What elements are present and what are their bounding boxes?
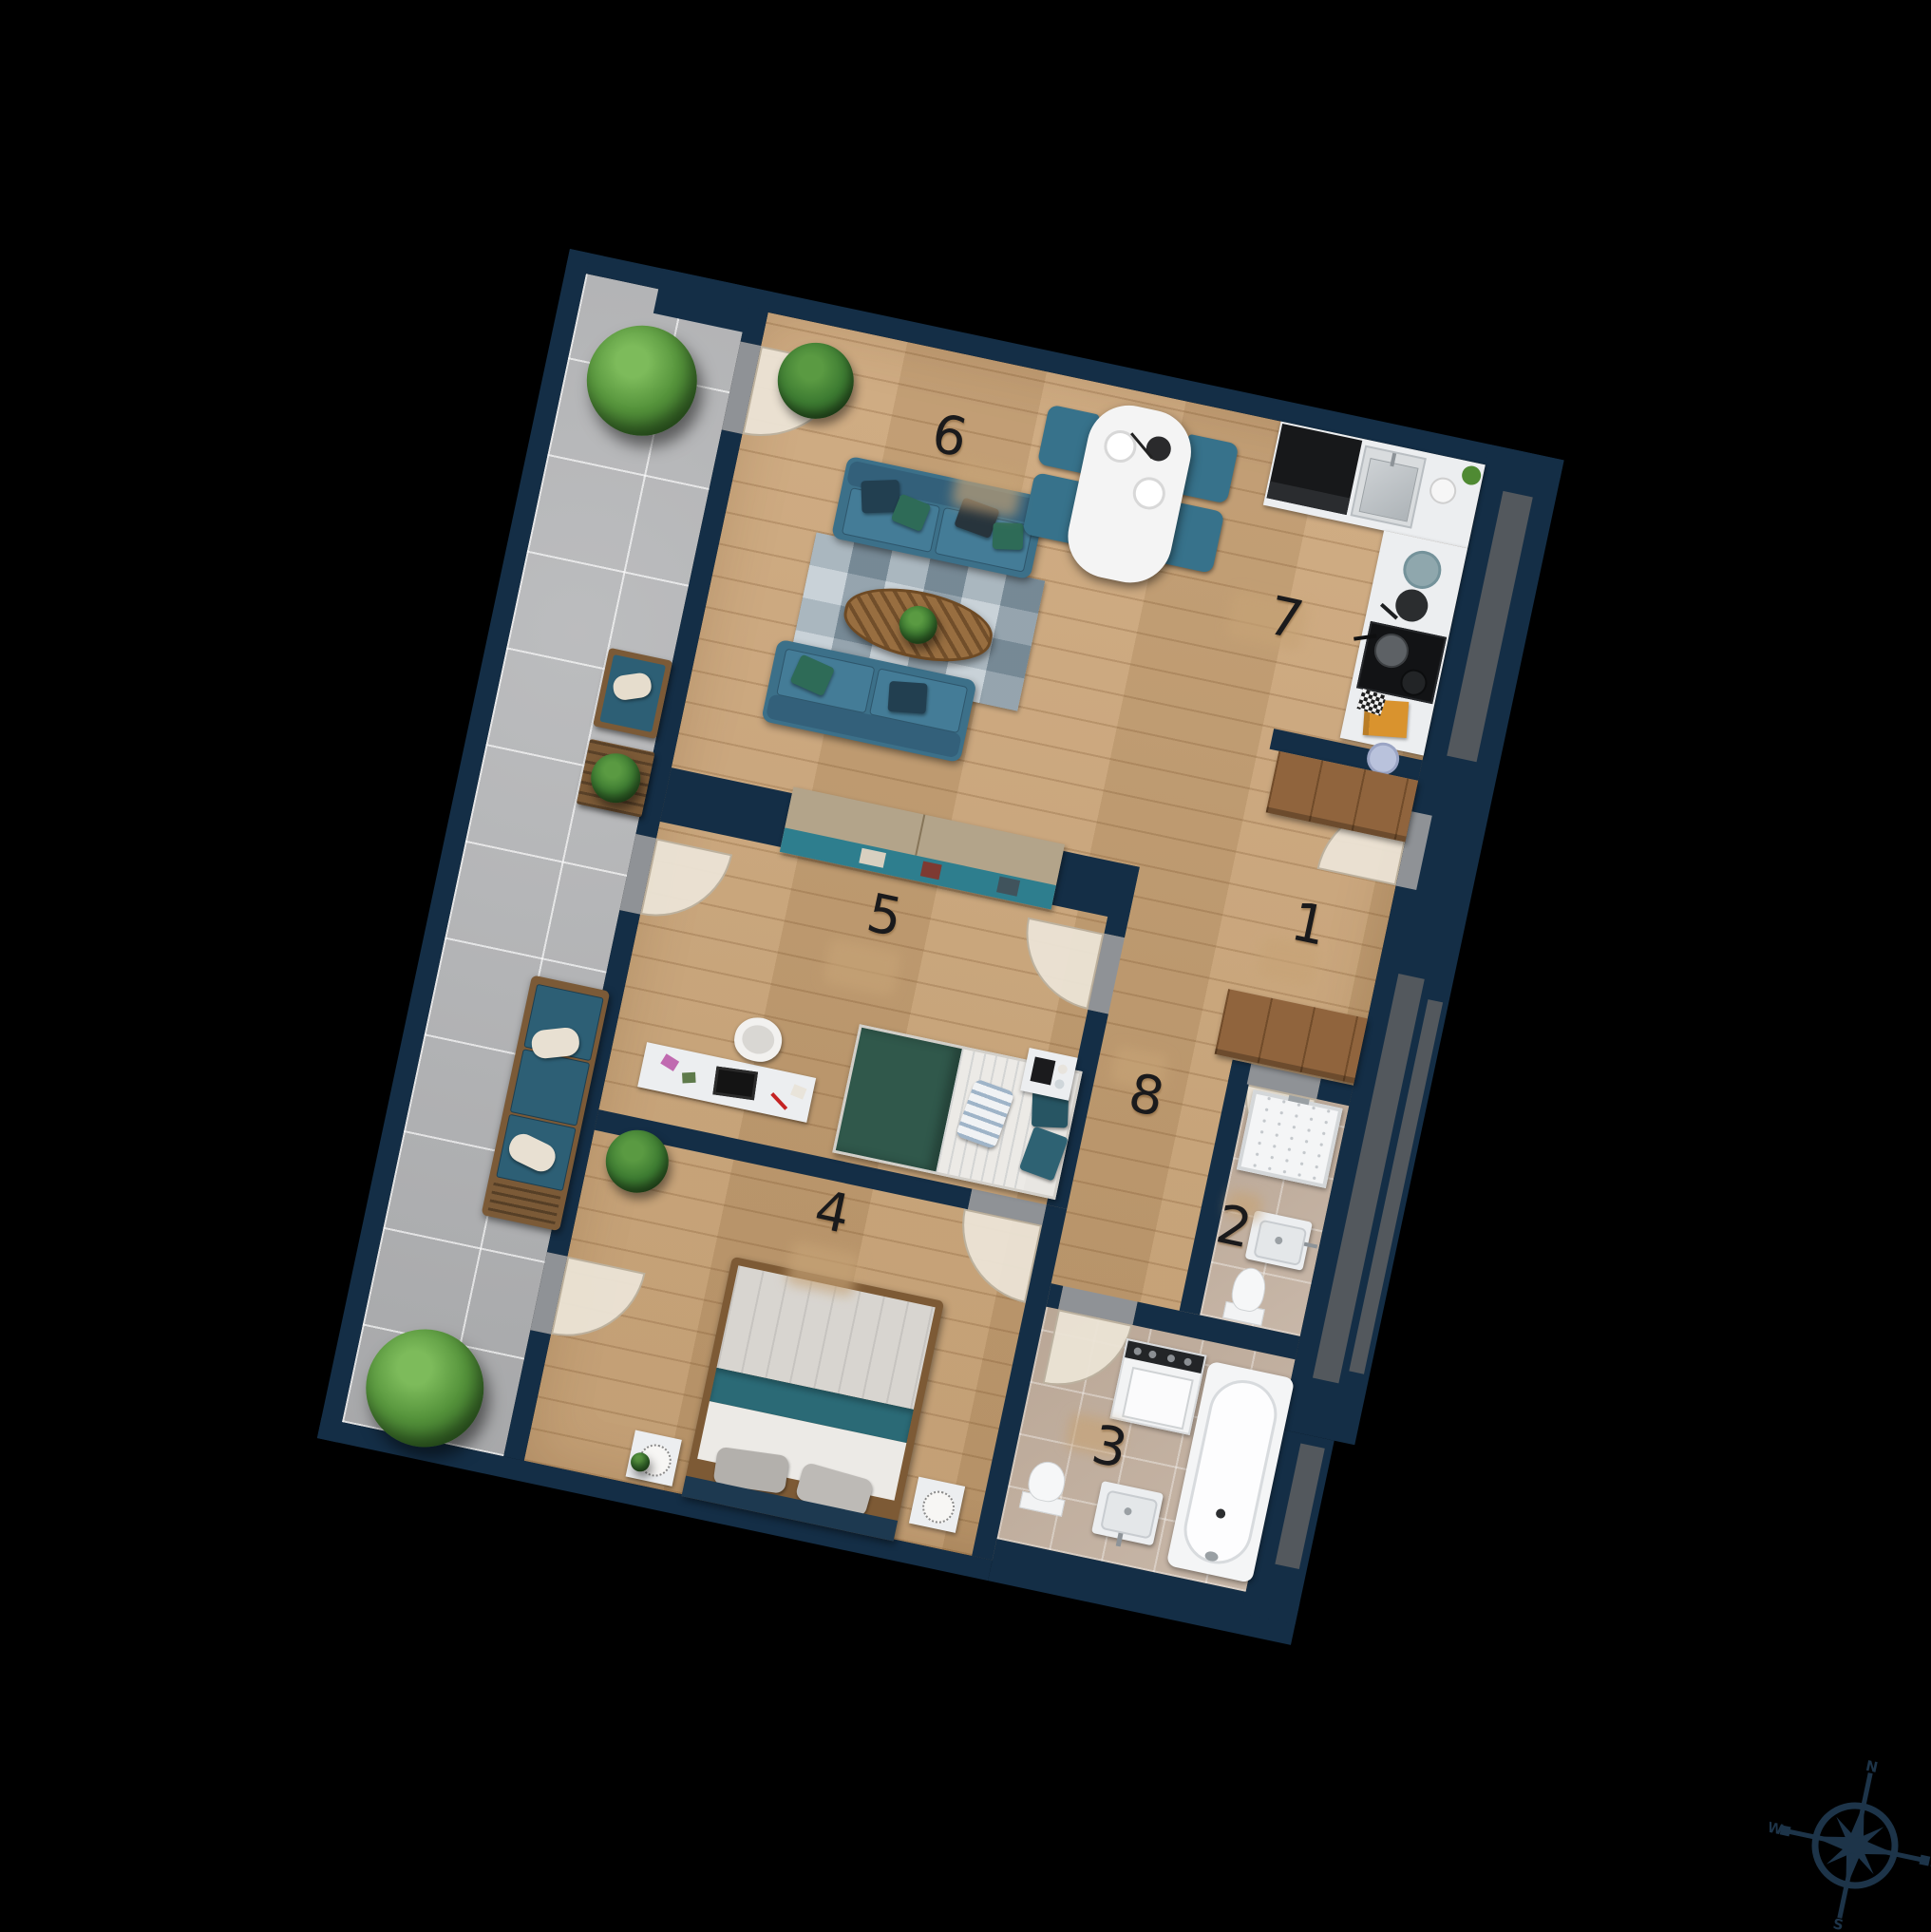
black-bowl <box>1144 434 1173 464</box>
wm-knob-1 <box>1133 1347 1142 1355</box>
room4-nightstand-right <box>909 1477 965 1533</box>
desk-paper-2 <box>682 1072 696 1084</box>
chair-seat <box>740 1022 777 1056</box>
dinner-plate-2 <box>1130 474 1168 512</box>
balcony-side-table <box>577 739 655 818</box>
bench-cushion-2 <box>510 1049 591 1126</box>
wm-knob-2 <box>1148 1350 1157 1358</box>
compass-west-label: W <box>1770 1819 1785 1839</box>
sofa-top-pillow-green2 <box>993 522 1024 550</box>
toilet-bowl <box>1228 1265 1269 1315</box>
desk-paper-1 <box>660 1053 679 1071</box>
compass-icon: N E S W <box>1770 1760 1931 1931</box>
coffee-table-plant <box>896 602 940 647</box>
apartment-plan: 6 7 1 5 8 2 4 3 <box>317 249 1564 1649</box>
sideboard-divider <box>915 814 925 855</box>
compass-south-label: S <box>1831 1915 1845 1931</box>
pot-on-cooktop-2 <box>1398 667 1429 698</box>
wm-knob-3 <box>1166 1354 1175 1362</box>
sink-basin <box>1359 458 1419 522</box>
laptop <box>712 1066 758 1100</box>
room4-nightstand-left <box>626 1430 682 1487</box>
coffee-cup-1 <box>1057 1064 1069 1075</box>
side-table-plant <box>586 748 645 807</box>
floor-plan-canvas: 6 7 1 5 8 2 4 3 N E <box>0 0 1931 1932</box>
wm-knob-4 <box>1183 1357 1192 1366</box>
sofa-bottom-pillow-navy <box>888 681 928 714</box>
compass-north-label: N <box>1865 1760 1880 1776</box>
pot-on-cooktop-1 <box>1372 631 1412 672</box>
coffee-cup-2 <box>1053 1078 1065 1089</box>
cutting-board <box>1363 699 1410 738</box>
espresso-machine <box>1030 1056 1055 1085</box>
red-pen <box>770 1092 787 1110</box>
desk-paper-3 <box>790 1084 806 1099</box>
nightstand-tray-right <box>919 1487 957 1525</box>
